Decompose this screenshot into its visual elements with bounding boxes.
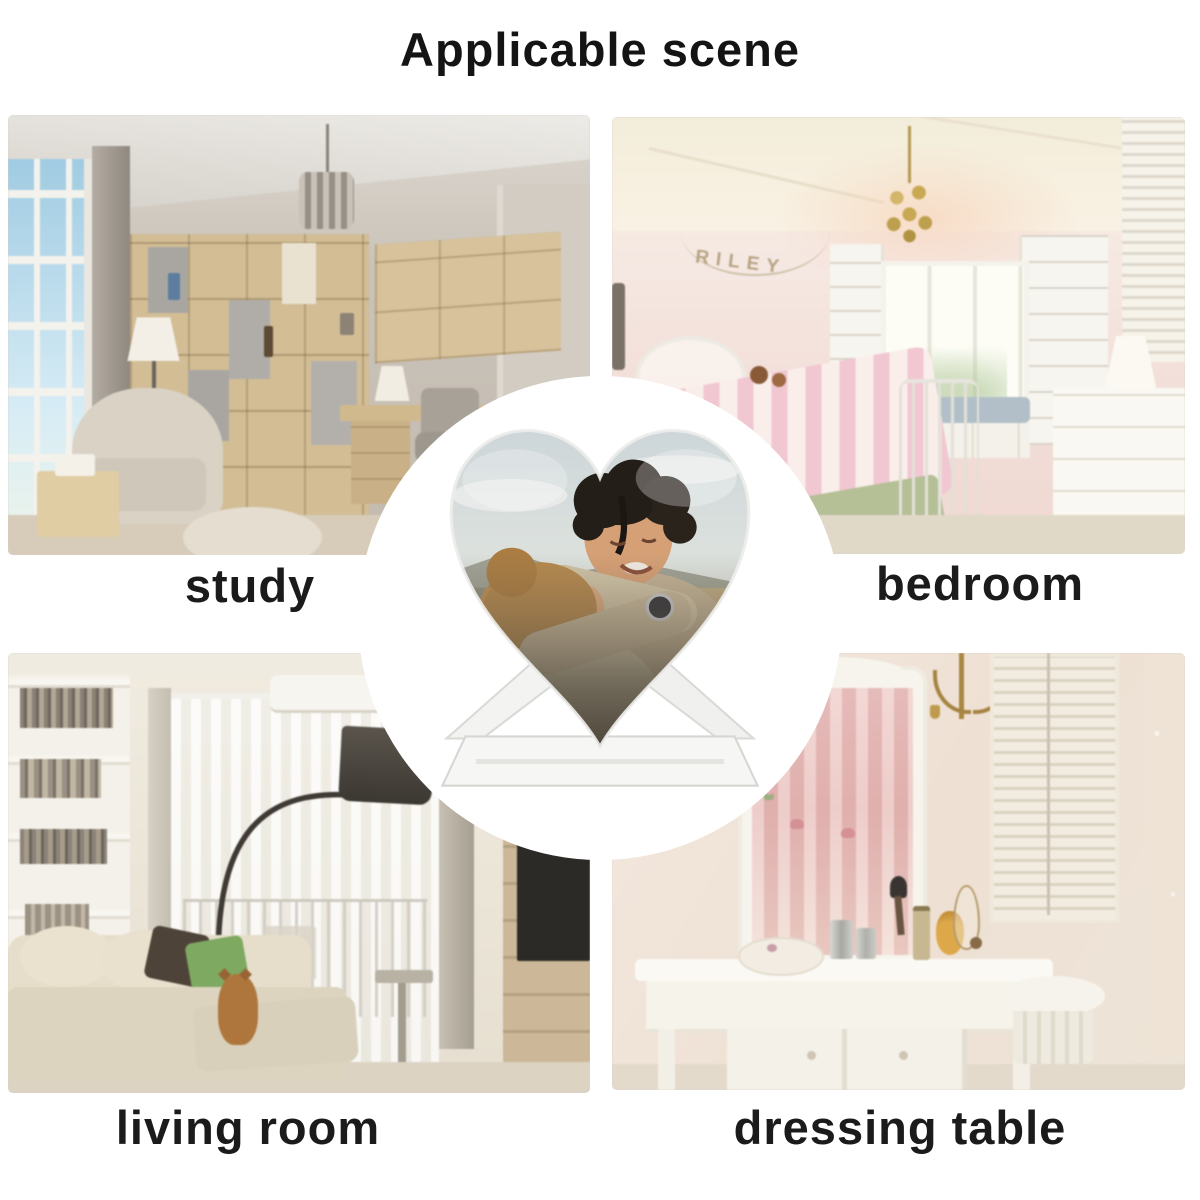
study-side-cabinet — [37, 471, 118, 537]
dressing-perfume-bottle — [913, 906, 930, 959]
scene-label-bedroom: bedroom — [876, 556, 1084, 611]
living-books — [20, 829, 107, 864]
study-pendant-lamp — [299, 172, 354, 229]
bedroom-chandelier — [878, 178, 941, 244]
study-corner-cabinet — [375, 232, 561, 364]
dressing-shutter-divider — [1047, 653, 1050, 915]
dressing-lace-curtain — [1145, 653, 1185, 1055]
dressing-vanity-top — [635, 959, 1053, 981]
study-pendant-cord — [326, 124, 329, 172]
dressing-stool-cushion — [1002, 976, 1105, 1015]
living-side-table-leg — [398, 983, 406, 1062]
study-tissue-box — [55, 454, 96, 476]
dressing-silver-jar — [856, 928, 876, 959]
heart-photo-frame — [415, 398, 785, 798]
bedroom-teddy-bear — [772, 373, 786, 387]
dressing-lace-doily — [738, 937, 824, 976]
study-books — [264, 326, 273, 357]
product-scene-collage: Applicable scene — [0, 0, 1200, 1200]
living-side-table — [375, 970, 433, 983]
dressing-doily-flower — [767, 944, 777, 952]
living-sofa-cushion — [20, 926, 113, 988]
dressing-vanity-apron — [646, 981, 1041, 1033]
dressing-vanity-drawers — [727, 1029, 968, 1090]
scene-label-study: study — [185, 558, 315, 613]
living-books — [20, 688, 113, 728]
bedroom-metal-footboard — [899, 379, 979, 523]
dressing-curtain-bow — [841, 828, 855, 838]
scene-label-dressing-table: dressing table — [734, 1100, 1067, 1155]
living-cat — [218, 974, 259, 1044]
dressing-stool-skirt — [1013, 1011, 1093, 1063]
study-shelf-panel — [282, 243, 317, 305]
bedroom-window-blinds — [1122, 117, 1185, 362]
dressing-window-shutters — [990, 653, 1118, 923]
scene-label-living-room: living room — [116, 1100, 380, 1155]
study-books — [168, 273, 180, 299]
study-books — [340, 313, 354, 335]
dressing-sconce-candle — [930, 705, 940, 719]
bedroom-teddy-bear — [750, 366, 768, 384]
living-books — [20, 759, 101, 799]
dressing-drawer-knob — [807, 1051, 816, 1060]
dressing-curtain-bow — [790, 819, 804, 829]
dressing-vanity-leg — [658, 1029, 675, 1090]
dressing-silver-jar — [830, 920, 853, 959]
dressing-makeup-brush — [890, 876, 907, 898]
dressing-drawer-knob — [899, 1051, 908, 1060]
bedroom-dress-form — [612, 283, 625, 370]
study-shelf-panel — [311, 361, 358, 445]
bedroom-chandelier-stem — [908, 126, 911, 183]
page-title: Applicable scene — [400, 22, 800, 77]
